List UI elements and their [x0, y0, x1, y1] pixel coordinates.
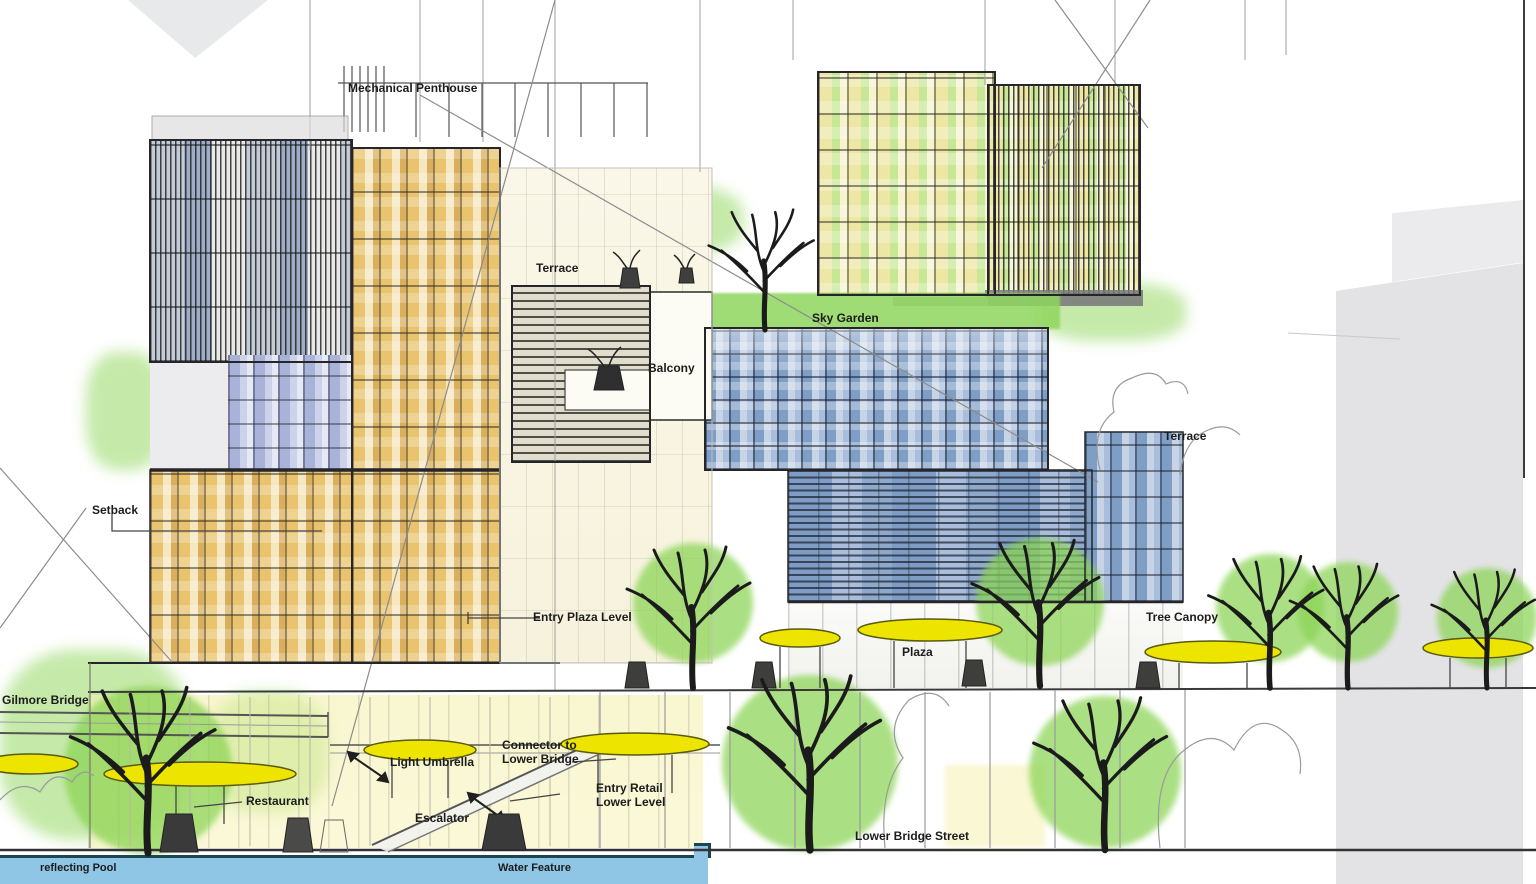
vertical-louvers — [150, 140, 352, 362]
orange-checker-base — [150, 470, 352, 663]
label-setback: Setback — [92, 504, 138, 518]
vertical-louvers — [988, 85, 1140, 295]
lavender-checker-facade — [228, 355, 352, 473]
label-escalator: Escalator — [415, 812, 469, 826]
label-connector-line2: Lower Bridge — [502, 753, 579, 767]
tree-canopy — [722, 675, 898, 851]
curtain-wall-block — [705, 328, 1048, 470]
tree-canopy — [1437, 568, 1536, 668]
penthouse-facade-checker — [818, 72, 995, 295]
background-roof-wedge — [128, 0, 268, 58]
sky-garden-band — [698, 293, 1060, 329]
label-entry-retail: Entry Retail Lower Level — [596, 782, 665, 810]
label-tree-canopy: Tree Canopy — [1146, 611, 1218, 625]
label-terrace-right: Terrace — [1164, 430, 1206, 444]
louvered-facade-block — [150, 140, 352, 362]
label-water-feature: Water Feature — [498, 862, 571, 875]
label-terrace-upper: Terrace — [536, 262, 578, 276]
blue-checker-block — [1085, 432, 1183, 602]
orange-checker-tower — [352, 148, 500, 663]
water-pool-step — [694, 843, 711, 858]
tree-canopy — [64, 686, 232, 854]
label-connector-line1: Connector to — [502, 739, 579, 753]
light-facade-strip — [150, 362, 228, 470]
label-connector: Connector to Lower Bridge — [502, 739, 579, 767]
label-entry-retail-line1: Entry Retail — [596, 782, 665, 796]
tree-canopy — [1298, 562, 1398, 662]
tree-canopy — [976, 538, 1104, 666]
label-entry-retail-line2: Lower Level — [596, 796, 665, 810]
tree-canopy — [1029, 696, 1181, 848]
label-plaza: Plaza — [902, 646, 933, 660]
penthouse-facade-louvered — [988, 85, 1140, 295]
tree-canopy — [633, 543, 753, 663]
label-mechanical-penthouse: Mechanical Penthouse — [348, 82, 477, 96]
label-balcony: Balcony — [648, 362, 695, 376]
label-light-umbrella: Light Umbrella — [390, 756, 474, 770]
label-reflecting-pool: reflecting Pool — [40, 862, 116, 875]
label-gilmore-bridge: Gilmore Bridge — [2, 694, 89, 708]
label-lower-bridge-street: Lower Bridge Street — [855, 830, 969, 844]
elevation-drawing: Mechanical Penthouse Terrace Balcony Sky… — [0, 0, 1536, 884]
label-entry-plaza-level: Entry Plaza Level — [533, 611, 632, 625]
terrace-louver-block — [512, 286, 650, 462]
label-restaurant: Restaurant — [246, 795, 309, 809]
penthouse-roof-element — [152, 116, 348, 140]
measure-line — [338, 66, 648, 137]
label-sky-garden: Sky Garden — [812, 312, 879, 326]
